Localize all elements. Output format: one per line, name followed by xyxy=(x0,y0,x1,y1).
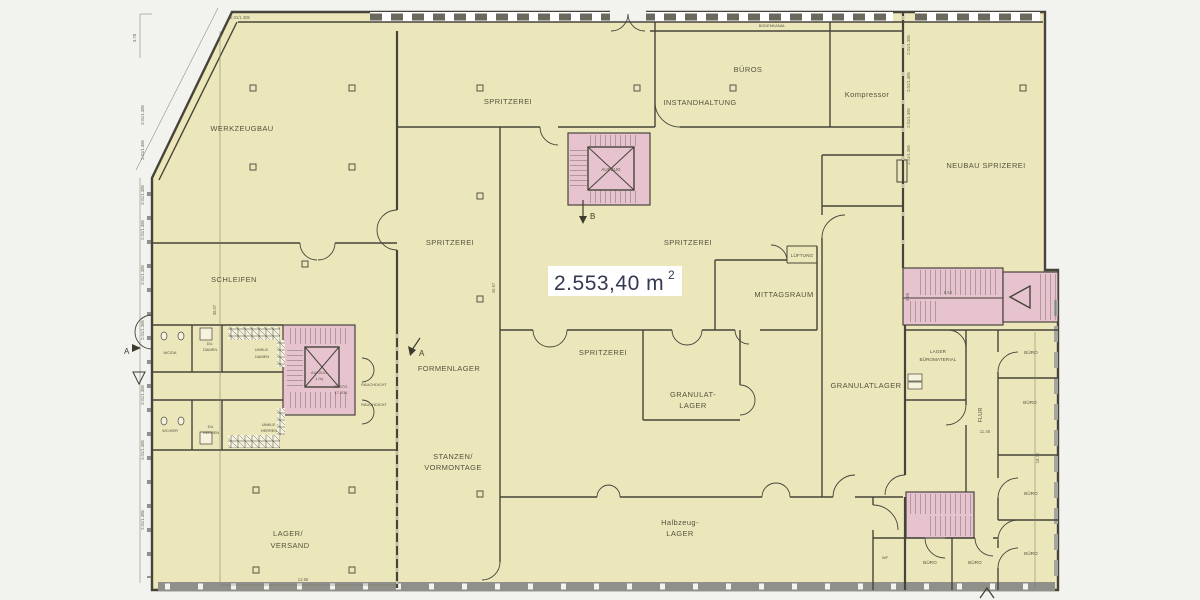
room-label-du-damen-2: DAMEN xyxy=(203,347,217,352)
floor-plan-svg: B A A 2.553,40 m 2 WERKZEUGBAU SPRITZERE… xyxy=(0,0,1200,600)
room-label-du-herren-2: HERREN xyxy=(203,430,220,435)
section-marker-a-left: A xyxy=(124,347,130,356)
room-label-du-damen-1: DU. xyxy=(207,341,214,346)
room-label-umkle-herren-1: UMKLE. xyxy=(262,422,277,427)
dim-854: 8.54 xyxy=(944,290,953,295)
room-label-schleifen: SCHLEIFEN xyxy=(211,275,257,284)
room-label-halbzeug-2: LAGER xyxy=(666,529,694,538)
window-dim-l9: 2.01/1.385 xyxy=(140,509,145,529)
window-dim-l1: 2.01/1.385 xyxy=(140,104,145,124)
window-dim-l6: 2.01/1.385 xyxy=(140,319,145,339)
window-dim-r1: 2.01/1.385 xyxy=(906,34,911,54)
room-label-lagerversand-1: LAGER/ xyxy=(273,529,303,538)
dim-389: 3.89 xyxy=(905,292,910,301)
window-dim-l3: 2.01/1.385 xyxy=(140,184,145,204)
room-label-wc-herren: WC/HER xyxy=(162,428,178,433)
room-label-wc-damen: WC/DA xyxy=(164,350,177,355)
room-label-buero-3: BÜRO xyxy=(1024,490,1038,496)
room-label-werkzeugbau: WERKZEUGBAU xyxy=(210,124,273,133)
room-label-buero-2: BÜRO xyxy=(1023,399,1037,405)
window-dim-l8: 2.01/1.385 xyxy=(140,439,145,459)
room-label-umkle-damen-1: UMKLE. xyxy=(255,347,270,352)
dim-4667: 46.67 xyxy=(491,282,496,293)
room-label-stanzen-2: VORMONTAGE xyxy=(424,463,482,472)
room-label-spritzerei-top: SPRITZEREI xyxy=(484,97,532,106)
label-stg-1: 22 STG. xyxy=(334,384,349,389)
label-aufzug-central: AUFZUG xyxy=(601,167,621,172)
window-dim-top: 2.01/1.385 xyxy=(230,15,250,20)
window-dim-l5: 2.01/1.385 xyxy=(140,264,145,284)
room-label-granulatlager: GRANULATLAGER xyxy=(831,381,902,390)
room-label-kompressor: Kompressor xyxy=(845,90,890,99)
window-dim-l2: 2.01/1.385 xyxy=(140,139,145,159)
window-dim-l4: 2.01/1.385 xyxy=(140,219,145,239)
dim-1255: 12.55 xyxy=(298,577,309,582)
window-dim-r4: 2.01/1.385 xyxy=(906,144,911,164)
dim-1146: 11.46 xyxy=(980,429,991,434)
label-aufzug-west-2: 1.0q xyxy=(315,376,323,381)
dim-378: 3.78 xyxy=(132,33,137,42)
room-label-granulat-1: GRANULAT- xyxy=(670,390,716,399)
window-dim-r2: 2.01/1.385 xyxy=(906,71,911,91)
room-label-buero-6: BÜRO xyxy=(968,559,982,565)
room-label-lueftung: LÜFTUNG xyxy=(791,252,814,258)
room-label-buero-5: BÜRO xyxy=(923,559,937,565)
room-label-lagerbuero-1: LAGER xyxy=(930,349,947,354)
area-superscript: 2 xyxy=(668,268,675,282)
room-label-lagerversand-2: VERSAND xyxy=(270,541,309,550)
room-label-bueros: BÜROS xyxy=(734,65,763,74)
dim-1830: 18.30 xyxy=(1035,452,1040,463)
section-marker-a-mid: A xyxy=(419,349,425,358)
section-marker-b: B xyxy=(590,212,596,221)
room-label-mittagsraum: MITTAGSRAUM xyxy=(754,290,813,299)
room-label-formenlager: FORMENLAGER xyxy=(418,364,481,373)
room-label-halbzeug-1: Halbzeug- xyxy=(661,518,699,527)
room-label-buero-4: BÜRO xyxy=(1024,550,1038,556)
window-dim-l7: 2.01/1.385 xyxy=(140,384,145,404)
room-label-du-herren-1: DU. xyxy=(208,424,215,429)
room-label-instandhaltung: INSTANDHALTUNG xyxy=(663,98,736,107)
dim-3807: 38.07 xyxy=(212,304,217,315)
label-aufzug-west-1: AUFZUG xyxy=(311,370,327,375)
room-label-spritzerei-bottom: SPRITZEREI xyxy=(579,348,627,357)
room-label-spritzerei-midright: SPRITZEREI xyxy=(664,238,712,247)
label-bodenkanal: BODENKANAL xyxy=(759,23,786,28)
label-stg-2: 17.2/31 xyxy=(335,390,348,395)
floor-plan-page: B A A 2.553,40 m 2 WERKZEUGBAU SPRITZERE… xyxy=(0,0,1200,600)
label-rauchdicht-1: RAUCHDICHT xyxy=(361,382,387,387)
area-value: 2.553,40 m xyxy=(554,272,664,295)
room-label-umkle-damen-2: DAMEN xyxy=(255,354,269,359)
window-dim-r3: 2.01/1.385 xyxy=(906,107,911,127)
room-label-lagerbuero-2: BÜROMATERIAL xyxy=(919,356,956,362)
room-label-flur: FLUR xyxy=(978,407,984,422)
room-label-stanzen-1: STANZEN/ xyxy=(433,452,473,461)
room-label-buero-1: BÜRO xyxy=(1024,349,1038,355)
room-label-wf: WF xyxy=(882,555,889,560)
room-label-neubau: NEUBAU SPRIZEREI xyxy=(946,161,1025,170)
room-label-granulat-2: LAGER xyxy=(679,401,707,410)
room-label-spritzerei-midleft: SPRITZEREI xyxy=(426,238,474,247)
label-rauchdicht-2: RAUCHDICHT xyxy=(361,402,387,407)
room-label-umkle-herren-2: HERREN xyxy=(261,428,278,433)
